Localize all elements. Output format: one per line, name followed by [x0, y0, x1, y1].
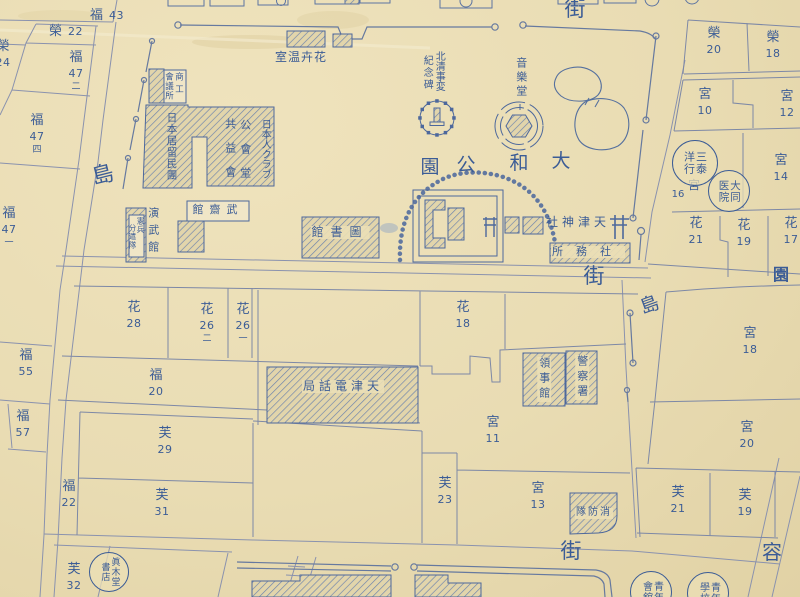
consulate-label: 領事館 — [537, 357, 551, 402]
lot-fuku-43-number: 43 — [109, 10, 124, 21]
seal-seinen-kaikan: 青年會舘 — [630, 571, 672, 597]
chamber-label-right: 商工 — [174, 72, 183, 97]
lot-hana-26-2: 花26二 — [200, 303, 215, 344]
seal-makido-shoten-left-column: 書店 — [100, 562, 109, 582]
lot-fuku-47-4: 福47四 — [30, 114, 45, 155]
shrine-label: 社神津天 — [546, 216, 610, 229]
lot-hana-26-2-sub: 二 — [202, 335, 211, 344]
fire-brigade-label: 隊防消 — [575, 508, 613, 519]
lot-fuku-55-prefix: 福 — [19, 349, 32, 362]
lot-fuku-57-prefix: 福 — [16, 410, 29, 423]
lot-hana-19: 花19 — [737, 219, 752, 247]
seal-daido-hospital: 大同医院 — [708, 170, 750, 212]
seal-seinen-gakko: 青年學校 — [687, 572, 729, 597]
lot-miya-13: 宮13 — [531, 482, 546, 510]
seal-seinen-kaikan-left-column: 會舘 — [641, 581, 651, 597]
lot-fu-32-prefix: 芙 — [67, 563, 80, 576]
kyoekikai-label: 共益會 — [224, 118, 236, 190]
lot-fuku-20-number: 20 — [149, 386, 164, 397]
lot-fu-19-prefix: 芙 — [738, 489, 751, 502]
seal-seinen-gakko-left-column: 學校 — [698, 582, 708, 597]
lot-hana-18-prefix: 花 — [456, 301, 469, 314]
lot-fu-29: 芙29 — [158, 427, 173, 455]
lot-sakae-24-prefix: 榮 — [0, 40, 10, 53]
greenhouse-label: 室温卉花 — [275, 51, 327, 64]
lot-miya-12-prefix: 宮 — [780, 90, 793, 103]
lot-fu-21-prefix: 芙 — [671, 486, 684, 499]
japanese-club-label: 日本人クラブ — [259, 119, 270, 179]
lot-sakae-18: 榮18 — [766, 31, 781, 59]
chamber-label-left: 會議所 — [164, 72, 173, 101]
lot-hana-28-number: 28 — [127, 318, 142, 329]
lot-hana-28: 花28 — [127, 301, 142, 329]
lot-fu-29-number: 29 — [158, 444, 173, 455]
lot-hana-26-2-number: 26 — [200, 320, 215, 331]
lot-hana-18: 花18 — [456, 301, 471, 329]
lot-fuku-47-2: 福47二 — [69, 51, 84, 92]
kokaido-label: 公會堂 — [239, 119, 251, 191]
lot-fu-21: 芙21 — [671, 486, 686, 514]
lot-hana-26-1-prefix: 花 — [236, 303, 249, 316]
lot-fuku-47-1: 福47一 — [2, 207, 17, 248]
street-gai-middle: 街 — [584, 265, 605, 287]
library-label: 館書圖 — [310, 226, 369, 239]
lot-fu-31-number: 31 — [155, 506, 170, 517]
seal-seinen-gakko-right-column: 青年 — [709, 582, 719, 597]
lot-hana-21: 花21 — [689, 217, 704, 245]
lot-fuku-47-1-sub: 一 — [4, 239, 13, 248]
lot-fuku-47-2-prefix: 福 — [69, 51, 82, 64]
lot-fuku-47-4-number: 47 — [30, 131, 45, 142]
lot-fu-32: 芙32 — [67, 563, 82, 591]
seal-santai-yoko-left-column: 洋行 — [684, 151, 695, 175]
lot-fu-23-number: 23 — [438, 494, 453, 505]
park-name-char-1: 大 — [551, 152, 570, 172]
lot-fuku-47-2-sub: 二 — [71, 83, 80, 92]
monument-label-left: 紀念碑 — [421, 55, 432, 91]
kenpei-label-right: 憲兵 — [136, 217, 144, 234]
lot-fuku-57-number: 57 — [16, 427, 31, 438]
lot-fu-23-prefix: 芙 — [438, 477, 451, 490]
lot-fuku-43-prefix: 福 — [90, 9, 103, 22]
lot-hana-26-1-number: 26 — [236, 320, 251, 331]
lot-miya-10-number: 10 — [698, 105, 713, 116]
lot-fuku-22-number: 22 — [62, 497, 77, 508]
lot-hana-19-number: 19 — [737, 236, 752, 247]
lot-hana-17-number: 17 — [784, 234, 799, 245]
lot-fuku-47-1-number: 47 — [2, 224, 17, 235]
street-gai-bottom: 街 — [561, 540, 582, 562]
lot-fuku-20: 福20 — [149, 369, 164, 397]
lot-miya-13-prefix: 宮 — [531, 482, 544, 495]
lot-fuku-55-number: 55 — [19, 366, 34, 377]
lot-sakae-20: 榮20 — [707, 27, 722, 55]
lot-miya-11-prefix: 宮 — [486, 416, 499, 429]
seal-makido-shoten: 眞木堂書店 — [89, 552, 129, 592]
lot-fuku-47-1-prefix: 福 — [2, 207, 15, 220]
lot-miya-10: 宮10 — [698, 88, 713, 116]
lot-hana-21-prefix: 花 — [689, 217, 702, 230]
lot-fu-31-prefix: 芙 — [155, 489, 168, 502]
lot-hana-19-prefix: 花 — [737, 219, 750, 232]
lot-miya-20-number: 20 — [740, 438, 755, 449]
map-canvas: 街島街島街容園園公和大室温卉花北清事変紀念碑音樂堂社神津天所務社館書圖局話電津天… — [0, 0, 800, 597]
street-gai-top: 街 — [565, 0, 586, 20]
lot-sakae-22-number: 22 — [68, 26, 83, 37]
lot-sakae-22: 榮22 — [49, 25, 83, 38]
lot-fuku-47-4-sub: 四 — [32, 146, 41, 155]
lot-miya-16-number: 16 — [672, 190, 685, 201]
lot-miya-11: 宮11 — [486, 416, 501, 444]
seal-seinen-kaikan-right-column: 青年 — [652, 581, 662, 597]
lot-sakae-20-prefix: 榮 — [707, 27, 720, 40]
lot-miya-12-number: 12 — [780, 107, 795, 118]
lot-miya-20: 宮20 — [740, 421, 755, 449]
kenpei-label-left: 分遣隊 — [128, 224, 136, 250]
seal-daido-hospital-left-column: 医院 — [718, 180, 729, 203]
street-you: 容 — [762, 542, 782, 563]
enbukan-label: 演武館 — [147, 207, 159, 258]
lot-hana-26-1: 花26一 — [236, 303, 251, 344]
street-shima-right: 島 — [638, 293, 663, 318]
lot-hana-17-prefix: 花 — [784, 217, 797, 230]
lot-hana-26-1-sub: 一 — [238, 335, 247, 344]
lot-miya-18-prefix: 宮 — [743, 327, 756, 340]
lot-fuku-47-2-number: 47 — [69, 68, 84, 79]
lot-hana-21-number: 21 — [689, 234, 704, 245]
lot-miya-14-number: 14 — [774, 171, 789, 182]
park-name-char-4: 園 — [420, 158, 439, 178]
lot-hana-26-2-prefix: 花 — [200, 303, 213, 316]
lot-fu-19: 芙19 — [738, 489, 753, 517]
lot-miya-14: 宮14 — [774, 154, 789, 182]
lot-fu-21-number: 21 — [671, 503, 686, 514]
lot-fu-23: 芙23 — [438, 477, 453, 505]
police-label: 警察署 — [575, 355, 589, 400]
lot-hana-17: 花17 — [784, 217, 799, 245]
lot-fuku-22: 福22 — [62, 480, 77, 508]
lot-fuku-22-prefix: 福 — [62, 480, 75, 493]
lot-miya-20-prefix: 宮 — [740, 421, 753, 434]
seal-daido-hospital-right-column: 大同 — [730, 180, 741, 203]
lot-fuku-57: 福57 — [16, 410, 31, 438]
lot-fu-32-number: 32 — [67, 580, 82, 591]
lot-miya-18-number: 18 — [743, 344, 758, 355]
shrine-office-label: 所務社 — [551, 246, 625, 258]
lot-fuku-55: 福55 — [19, 349, 34, 377]
lot-fuku-43: 福43 — [90, 9, 124, 22]
lot-sakae-18-number: 18 — [766, 48, 781, 59]
lot-miya-11-number: 11 — [486, 433, 501, 444]
lot-fu-29-prefix: 芙 — [158, 427, 171, 440]
lot-sakae-24-number: 24 — [0, 57, 11, 68]
monument-label-right: 北清事変 — [433, 51, 444, 91]
seal-santai-yoko-right-column: 三泰 — [696, 151, 707, 175]
lot-miya-12: 宮12 — [780, 90, 795, 118]
park-name-char-3: 公 — [456, 156, 475, 176]
music-hall-label: 音樂堂 — [515, 57, 527, 99]
lot-fu-19-number: 19 — [738, 506, 753, 517]
residents-association-label: 日本居留民團 — [165, 112, 176, 181]
street-en: 園 — [773, 267, 789, 284]
lot-fuku-20-prefix: 福 — [149, 369, 162, 382]
lot-sakae-20-number: 20 — [707, 44, 722, 55]
lot-miya-10-prefix: 宮 — [698, 88, 711, 101]
buseikan-label: 館齋武 — [193, 204, 244, 216]
lot-fuku-47-4-prefix: 福 — [30, 114, 43, 127]
park-name-char-2: 和 — [509, 154, 528, 174]
lot-miya-13-number: 13 — [531, 499, 546, 510]
lot-sakae-24: 榮24 — [0, 40, 11, 68]
lot-miya-18: 宮18 — [743, 327, 758, 355]
lot-hana-28-prefix: 花 — [127, 301, 140, 314]
label-layer: 街島街島街容園園公和大室温卉花北清事変紀念碑音樂堂社神津天所務社館書圖局話電津天… — [0, 0, 800, 597]
lot-miya-14-prefix: 宮 — [774, 154, 787, 167]
lot-sakae-22-prefix: 榮 — [49, 25, 62, 38]
street-shima-left: 島 — [90, 162, 117, 190]
lot-sakae-18-prefix: 榮 — [766, 31, 779, 44]
lot-fu-31: 芙31 — [155, 489, 170, 517]
telephone-office-label: 局話電津天 — [302, 380, 384, 393]
lot-hana-18-number: 18 — [456, 318, 471, 329]
seal-makido-shoten-right-column: 眞木堂 — [110, 557, 119, 587]
